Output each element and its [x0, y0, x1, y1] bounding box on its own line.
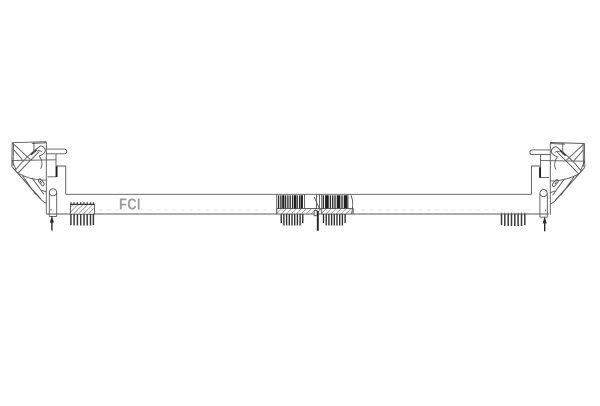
svg-text:FCI: FCI: [119, 197, 141, 214]
